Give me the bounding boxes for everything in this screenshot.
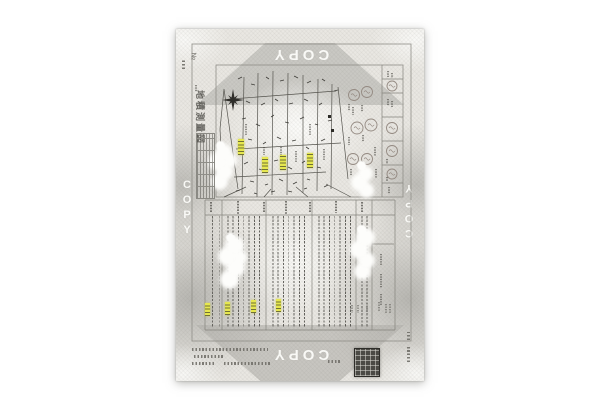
mini-info-table	[196, 133, 215, 199]
document-linework	[176, 29, 424, 381]
whiteout-blob	[216, 141, 225, 150]
table-row-stripes	[268, 216, 308, 327]
parcel-boundary-lines	[220, 71, 351, 197]
highlight-marker	[238, 139, 244, 155]
round-seal-icons	[348, 81, 398, 179]
highlight-marker	[262, 157, 268, 173]
edge-micro-text	[182, 59, 185, 69]
highlight-marker	[307, 153, 313, 168]
corner-number: №	[189, 53, 196, 61]
footer-note-line	[194, 355, 224, 358]
table-row-stripes	[314, 216, 354, 327]
benchmark-square-icon	[328, 115, 334, 132]
scan-background: COPY COPY COPY COPY	[0, 0, 600, 400]
edge-micro-text	[407, 347, 410, 362]
highlight-marker	[205, 303, 210, 316]
footer-note-line	[192, 362, 216, 365]
whiteout-blob	[357, 161, 366, 170]
highlight-marker	[276, 299, 281, 312]
highlight-marker	[280, 155, 286, 170]
footer-note-line	[224, 362, 270, 365]
registry-stamp-icon	[354, 348, 380, 377]
table-header-labels	[211, 201, 362, 214]
seal-strip-grid	[382, 65, 403, 197]
edge-micro-text	[407, 332, 410, 340]
scanned-document-page: COPY COPY COPY COPY	[176, 29, 424, 381]
footer-note-line	[328, 360, 340, 363]
compass-rose-icon	[222, 89, 244, 111]
highlight-marker	[251, 300, 256, 313]
footer-note-line	[192, 348, 268, 351]
whiteout-blob	[357, 225, 366, 234]
whiteout-blob	[226, 233, 235, 242]
highlight-marker	[225, 302, 230, 315]
